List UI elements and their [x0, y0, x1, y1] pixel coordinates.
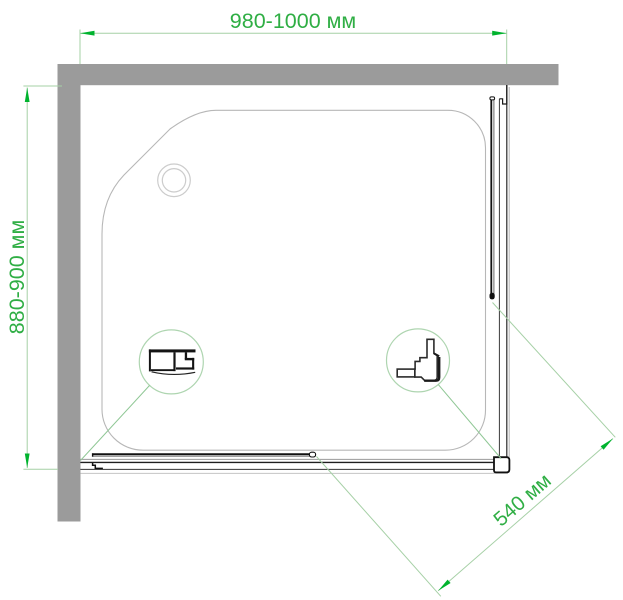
- svg-text:540 мм: 540 мм: [489, 469, 555, 531]
- svg-text:980-1000 мм: 980-1000 мм: [230, 9, 356, 33]
- svg-text:880-900 мм: 880-900 мм: [5, 220, 29, 334]
